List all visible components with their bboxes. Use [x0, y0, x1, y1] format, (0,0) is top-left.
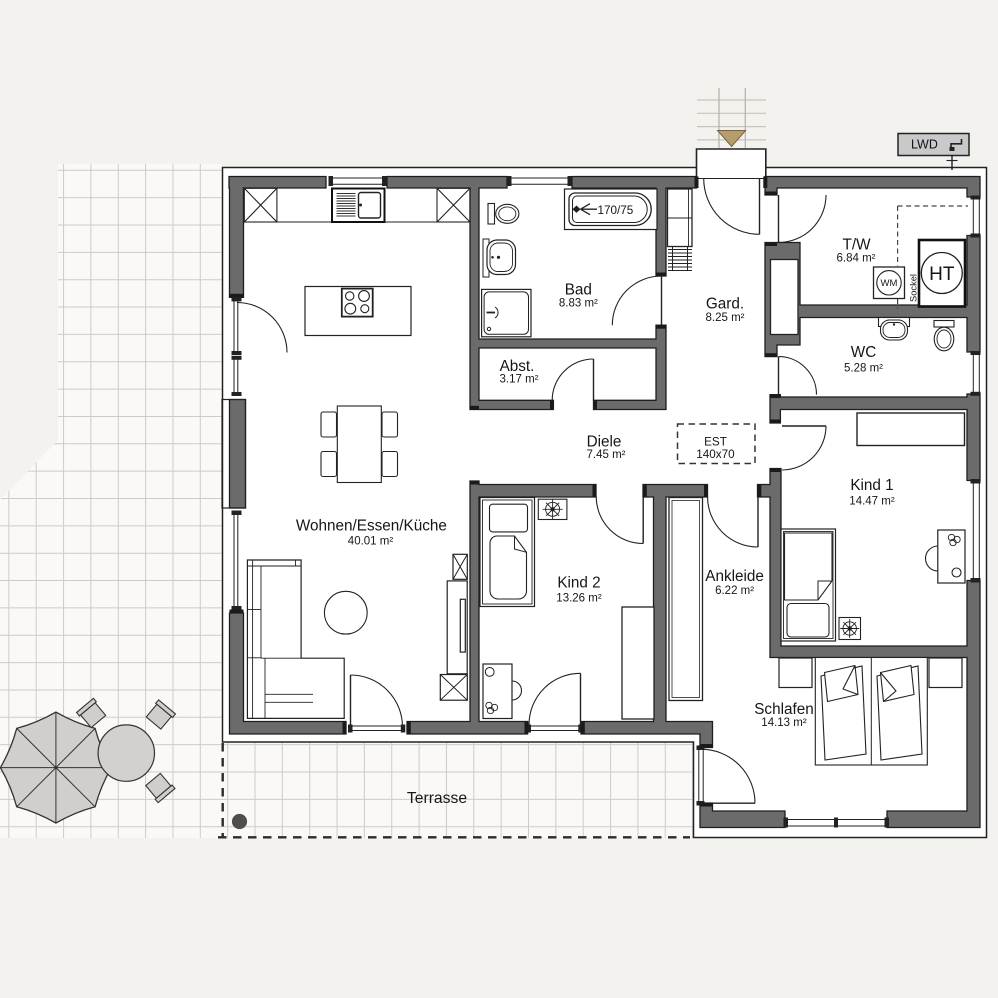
svg-text:Schlafen: Schlafen	[754, 701, 814, 718]
svg-text:WC: WC	[851, 344, 877, 361]
svg-text:6.22 m²: 6.22 m²	[715, 585, 754, 597]
svg-text:170/75: 170/75	[598, 204, 634, 217]
svg-text:Sockel: Sockel	[909, 274, 919, 302]
svg-text:3.17 m²: 3.17 m²	[500, 373, 539, 385]
svg-text:Wohnen/Essen/Küche: Wohnen/Essen/Küche	[296, 518, 447, 535]
svg-text:13.26 m²: 13.26 m²	[556, 593, 602, 605]
svg-text:14.47 m²: 14.47 m²	[849, 496, 895, 508]
svg-text:WM: WM	[881, 278, 898, 289]
svg-text:HT: HT	[929, 264, 955, 285]
svg-text:8.25 m²: 8.25 m²	[706, 312, 745, 324]
svg-text:Ankleide: Ankleide	[705, 568, 764, 585]
svg-text:Kind 2: Kind 2	[557, 575, 600, 592]
svg-text:140x70: 140x70	[696, 448, 735, 461]
svg-text:40.01 m²: 40.01 m²	[348, 536, 394, 548]
svg-text:Terrasse: Terrasse	[407, 790, 467, 807]
svg-text:6.84 m²: 6.84 m²	[837, 253, 876, 265]
svg-text:5.28 m²: 5.28 m²	[844, 363, 883, 375]
svg-text:Bad: Bad	[565, 282, 592, 299]
svg-text:T/W: T/W	[842, 236, 871, 253]
svg-text:EST: EST	[704, 436, 727, 449]
svg-text:Gard.: Gard.	[706, 296, 744, 313]
svg-text:LWD: LWD	[911, 138, 938, 152]
svg-text:8.83 m²: 8.83 m²	[559, 297, 598, 309]
svg-text:Kind 1: Kind 1	[850, 477, 893, 494]
svg-text:7.45 m²: 7.45 m²	[587, 449, 626, 461]
svg-text:14.13 m²: 14.13 m²	[761, 717, 807, 729]
